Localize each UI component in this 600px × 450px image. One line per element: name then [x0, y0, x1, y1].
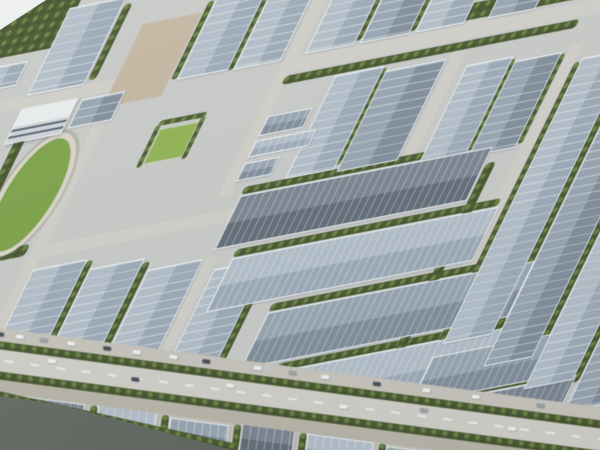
aerial-industrial-park-render: Aerial 3D rendering of a large industria… [0, 0, 600, 450]
car [0, 332, 4, 337]
warehouse-building [0, 61, 28, 93]
car [373, 381, 381, 386]
car [422, 388, 430, 393]
car [133, 350, 141, 355]
car [202, 359, 210, 364]
parking-lot [0, 137, 1, 165]
road [38, 207, 241, 259]
car [226, 383, 234, 388]
car [508, 426, 516, 431]
car [48, 359, 56, 364]
car [321, 375, 329, 380]
car [39, 338, 47, 343]
car [472, 394, 480, 399]
car [67, 341, 75, 346]
car [169, 355, 177, 360]
car [103, 346, 111, 351]
car [288, 370, 296, 375]
car [16, 334, 24, 339]
car [254, 366, 262, 371]
car [419, 408, 427, 413]
car [536, 403, 544, 408]
tree-row [376, 443, 386, 450]
car [131, 377, 139, 382]
car [339, 404, 347, 409]
